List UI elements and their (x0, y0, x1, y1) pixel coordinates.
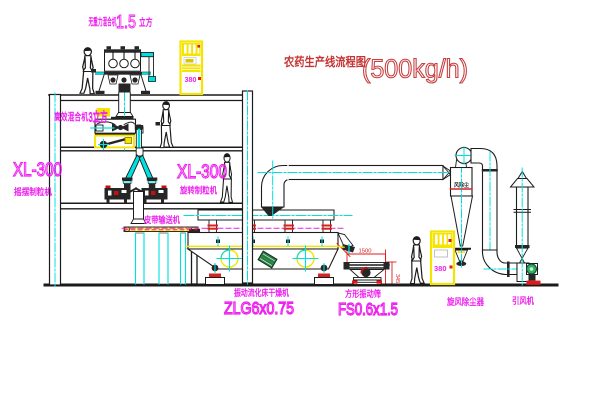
svg-text:1.5: 1.5 (116, 12, 136, 32)
svg-text:农药生产线流程图: 农药生产线流程图 (283, 54, 366, 69)
svg-text:ZLG6x0.75: ZLG6x0.75 (224, 298, 294, 318)
svg-text:345: 345 (394, 274, 400, 283)
svg-text:立方: 立方 (139, 16, 153, 29)
svg-text:高效混合机: 高效混合机 (54, 111, 88, 124)
svg-text:380: 380 (434, 264, 447, 273)
svg-text:引风机: 引风机 (512, 295, 534, 306)
svg-text:3立方: 3立方 (89, 110, 108, 125)
svg-text:方形振动筛: 方形振动筛 (345, 288, 381, 299)
svg-text:皮带输送机: 皮带输送机 (143, 214, 180, 225)
svg-text:XL-300: XL-300 (177, 162, 227, 183)
svg-text:旋转制粒机: 旋转制粒机 (179, 185, 217, 196)
svg-text:XL-300: XL-300 (13, 160, 62, 181)
svg-text:380: 380 (185, 75, 197, 84)
svg-text:FS0.6x1.5: FS0.6x1.5 (338, 299, 398, 319)
svg-text:摇摆制粒机: 摇摆制粒机 (14, 186, 52, 197)
svg-text:(500kg/h): (500kg/h) (362, 56, 468, 84)
svg-text:振动流化床干燥机: 振动流化床干燥机 (234, 287, 289, 298)
svg-text:无重力混合机: 无重力混合机 (88, 16, 116, 29)
svg-text:1500: 1500 (359, 249, 372, 255)
svg-text:旋风除尘器: 旋风除尘器 (446, 296, 485, 307)
